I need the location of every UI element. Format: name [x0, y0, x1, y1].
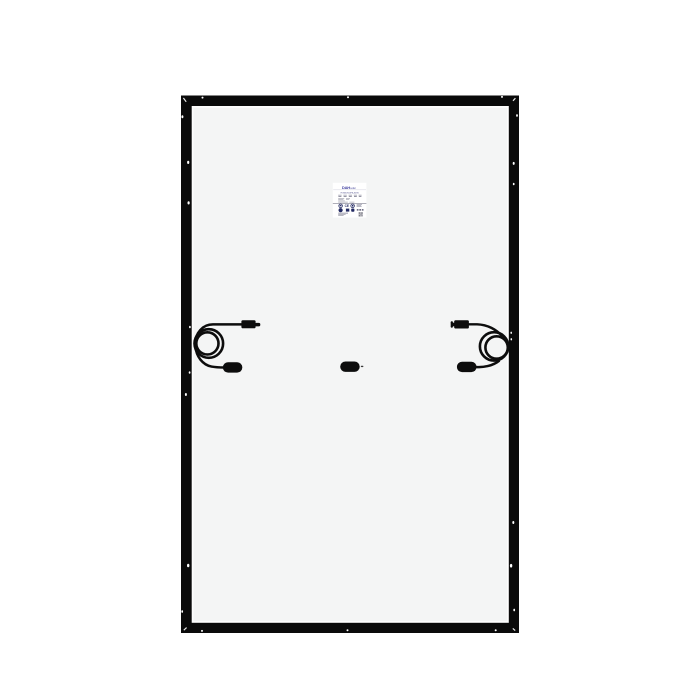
svg-text:DAHsolar: DAHsolar	[342, 185, 357, 190]
svg-text:CE: CE	[345, 204, 349, 208]
svg-text:HCM60X10FB-450W: HCM60X10FB-450W	[341, 193, 359, 195]
